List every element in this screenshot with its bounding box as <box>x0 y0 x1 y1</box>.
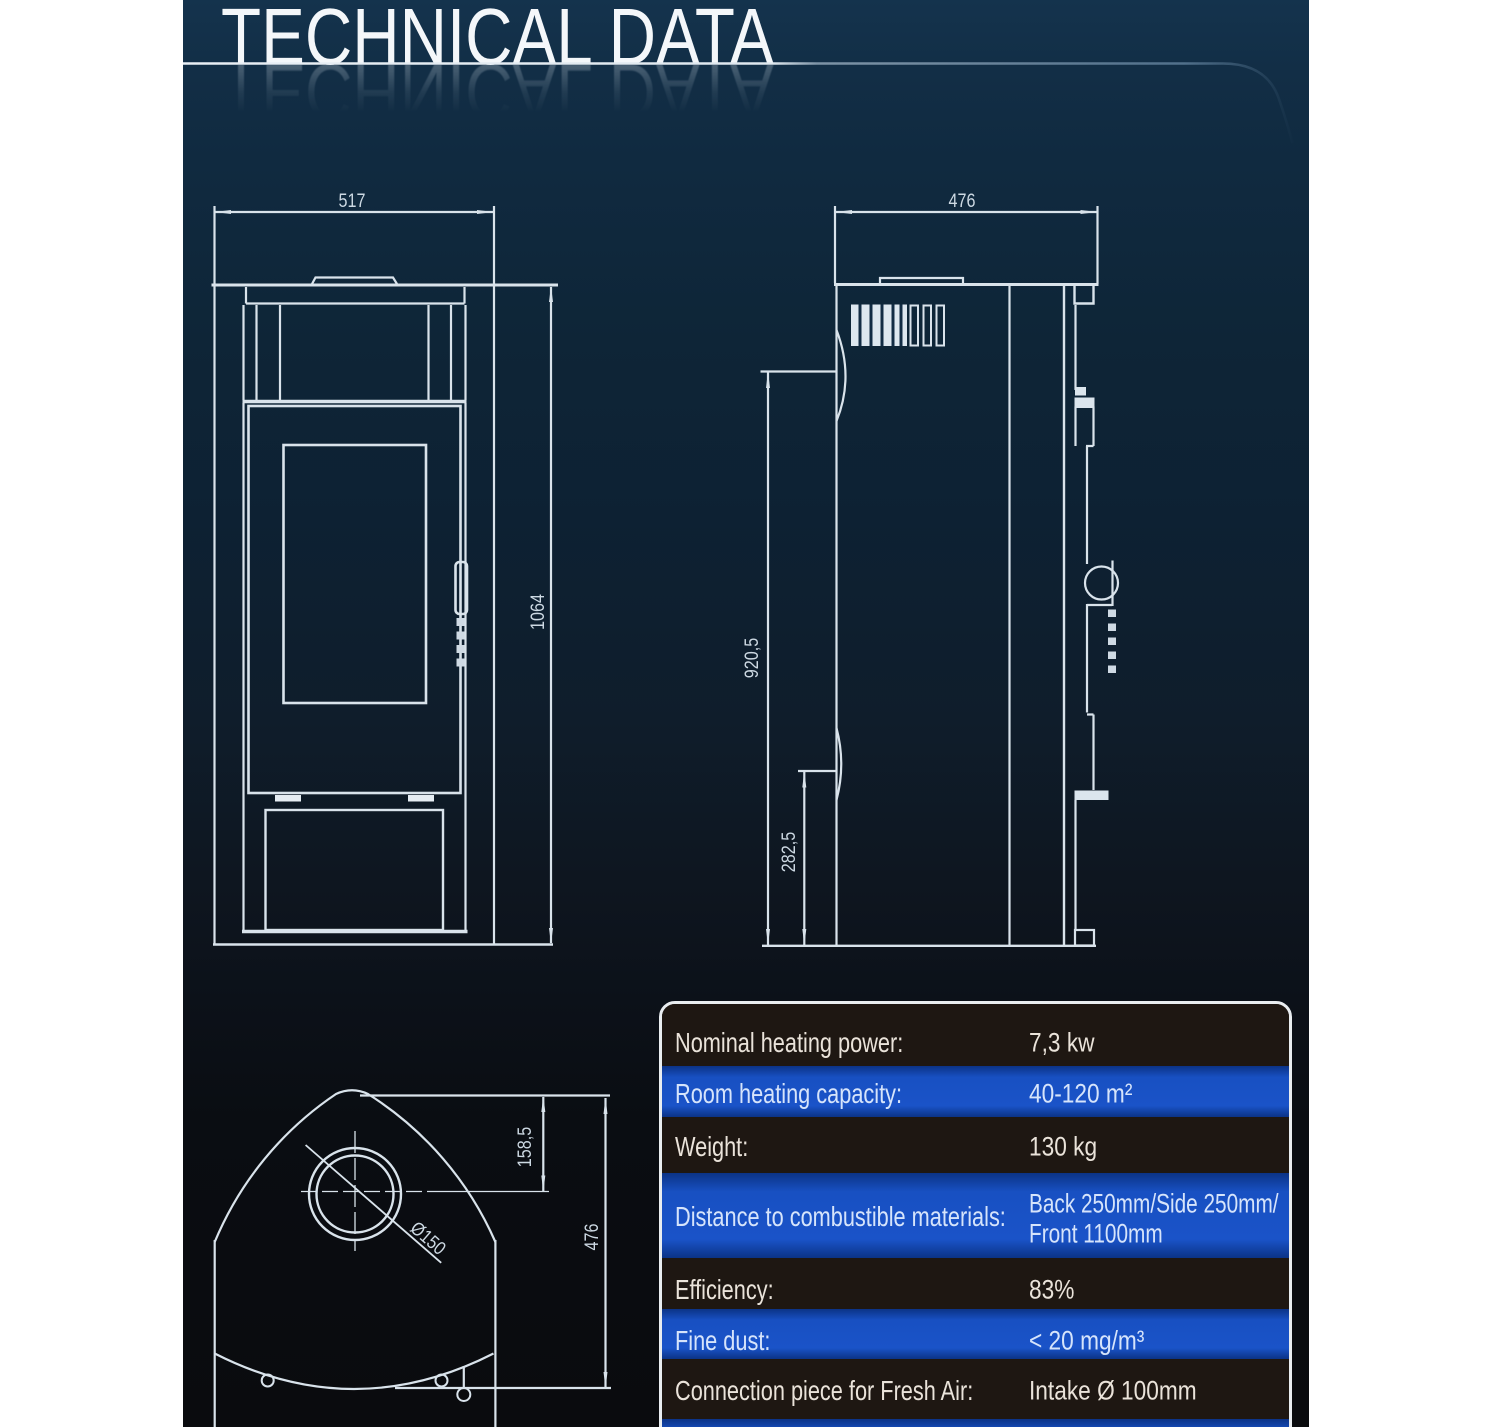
svg-text:158,5: 158,5 <box>514 1127 536 1168</box>
svg-text:476: 476 <box>949 190 976 212</box>
svg-text:1064: 1064 <box>527 594 549 630</box>
svg-text:Ø150: Ø150 <box>406 1217 450 1259</box>
svg-text:920,5: 920,5 <box>741 638 763 679</box>
svg-text:282,5: 282,5 <box>778 832 800 873</box>
svg-text:476: 476 <box>581 1223 603 1250</box>
svg-text:517: 517 <box>339 190 366 212</box>
